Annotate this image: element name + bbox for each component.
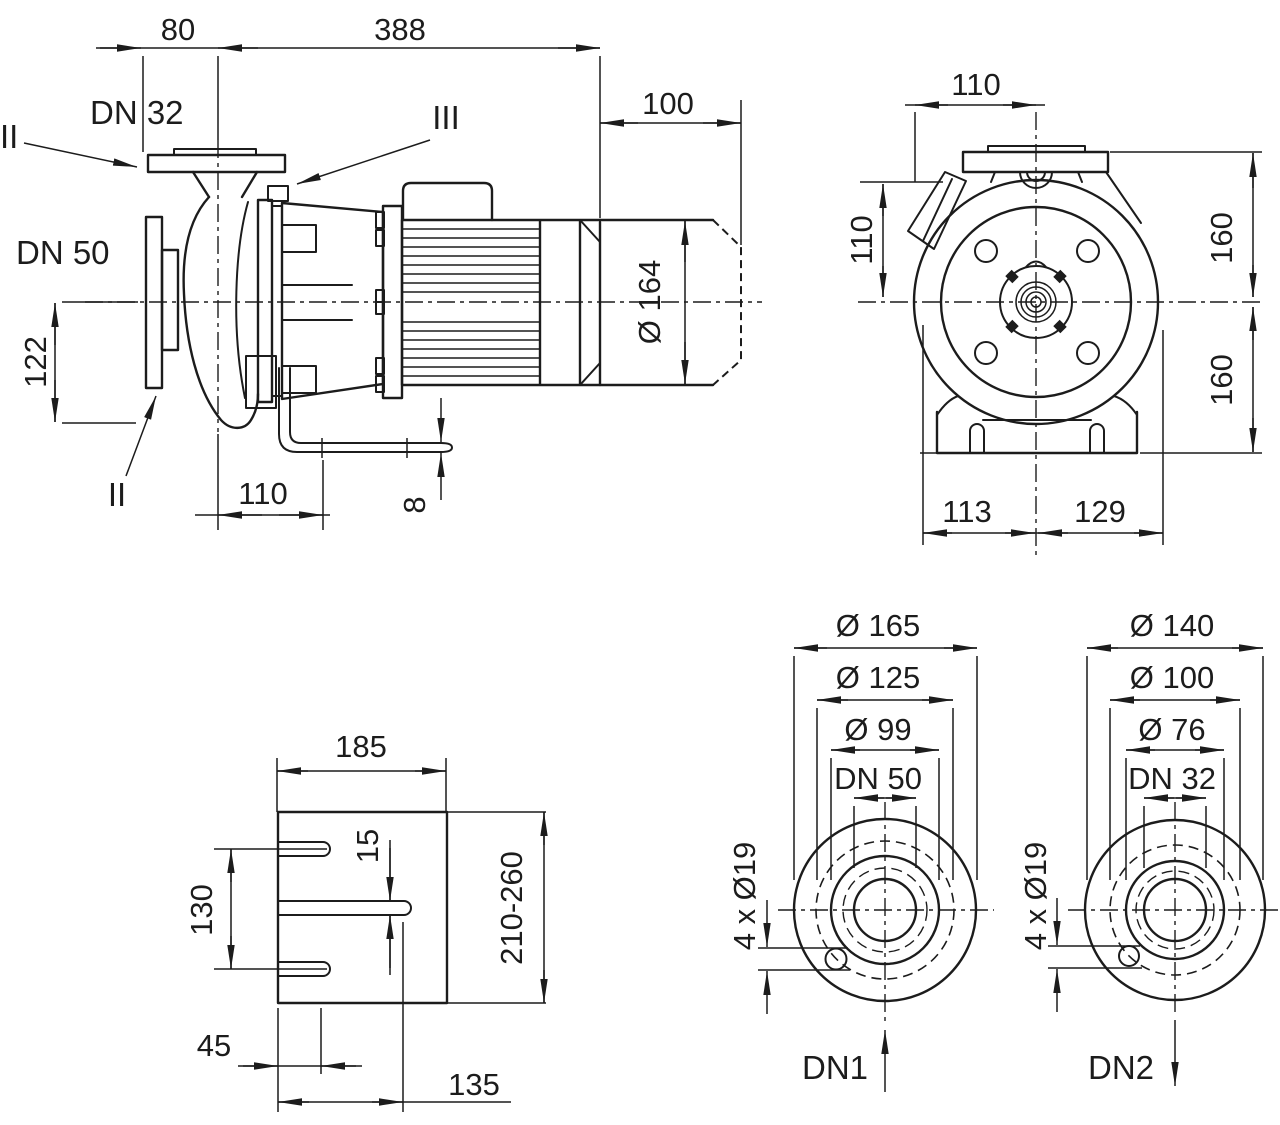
lantern-housing [282, 203, 383, 399]
flange-dn32-view: Ø 140 Ø 100 Ø 76 DN 32 4 x Ø19 DN2 [1018, 608, 1280, 1086]
feet-fillets [937, 396, 1137, 415]
dim-8-label: 8 [397, 496, 432, 513]
dim-100-label: 100 [642, 86, 694, 121]
dim-45-label: 45 [197, 1028, 231, 1063]
dim-129-label: 129 [1074, 494, 1126, 529]
dim-dia140-label: Ø 140 [1130, 608, 1214, 643]
vent-plug [268, 186, 288, 201]
section-leader-drain [126, 396, 156, 476]
section-mark-vent: III [432, 99, 460, 136]
lantern-bolt-top [282, 225, 316, 252]
feet-outline [937, 412, 1137, 453]
terminal-box [403, 183, 492, 220]
suction-flange-neck [162, 250, 178, 350]
support-lug-left [908, 172, 966, 249]
flange1-texts: Ø 165 Ø 125 Ø 99 DN 50 4 x Ø19 DN1 [727, 608, 922, 1086]
dim-dia100-label: Ø 100 [1130, 660, 1214, 695]
label-dn32: DN 32 [90, 94, 184, 131]
dim-135-label: 135 [448, 1067, 500, 1102]
flange2-outline [1068, 802, 1280, 1014]
port-label-dn1: DN1 [802, 1049, 868, 1086]
dim-bolt-holes-label: 4 x Ø19 [1018, 842, 1053, 951]
flange-dn50-view: Ø 165 Ø 125 Ø 99 DN 50 4 x Ø19 DN1 [727, 608, 994, 1092]
section-mark-flange: II [0, 118, 18, 155]
drain-pipe-ticks [322, 438, 407, 458]
dim-113-label: 113 [942, 494, 991, 529]
front-outline [858, 112, 1262, 560]
bolt-hole [975, 240, 997, 262]
flange1-outline [778, 802, 994, 1024]
discharge-flange [148, 155, 285, 172]
dim-80-label: 80 [161, 12, 195, 47]
bolt-hole [975, 342, 997, 364]
bolt-hole [1077, 240, 1099, 262]
section-mark-drain: II [108, 476, 126, 513]
dim-160-upper-label: 160 [1204, 212, 1239, 264]
dim-130-label: 130 [184, 884, 219, 936]
dim-110-label: 110 [238, 476, 287, 511]
dim-122-label: 122 [18, 336, 53, 388]
discharge-funnel [193, 172, 257, 197]
dim-210-260-label: 210-260 [494, 851, 529, 965]
section-leader-vent [297, 140, 430, 184]
label-dn50: DN 50 [16, 234, 110, 271]
side-texts: 80 388 100 Ø 164 122 110 8 DN 32 DN 50 I… [0, 12, 694, 514]
base-plate-view: 185 15 130 210-260 45 135 [184, 729, 546, 1112]
discharge-flange-lip [174, 149, 256, 155]
dim-110-top-label: 110 [951, 67, 1000, 102]
seal-plate [258, 200, 272, 402]
port-label-dn2: DN2 [1088, 1049, 1154, 1086]
side-view: 80 388 100 Ø 164 122 110 8 DN 32 DN 50 I… [0, 12, 762, 530]
pump-dimensional-drawing: 80 388 100 Ø 164 122 110 8 DN 32 DN 50 I… [0, 0, 1280, 1125]
lantern-bolt-bottom [282, 366, 316, 393]
dim-dn50-label: DN 50 [834, 761, 922, 796]
dim-dia165-label: Ø 165 [836, 608, 920, 643]
dim-dia99-label: Ø 99 [844, 712, 911, 747]
foot-slots [970, 424, 1104, 453]
dim-dn32-label: DN 32 [1128, 761, 1216, 796]
dim-bolt-holes-label: 4 x Ø19 [727, 842, 762, 951]
dim-388-label: 388 [374, 12, 426, 47]
base-slot-middle [278, 901, 411, 915]
bolt-hole [1077, 342, 1099, 364]
flange2-texts: Ø 140 Ø 100 Ø 76 DN 32 4 x Ø19 DN2 [1018, 608, 1216, 1086]
dim-185-label: 185 [335, 729, 387, 764]
drain-pipe [279, 368, 452, 452]
dim-160-lower-label: 160 [1204, 354, 1239, 406]
front-view: 110 110 160 160 113 129 [844, 67, 1262, 560]
drawing-canvas: 80 388 100 Ø 164 122 110 8 DN 32 DN 50 I… [0, 0, 1280, 1125]
front-texts: 110 110 160 160 113 129 [844, 67, 1239, 529]
section-leader-flange [24, 143, 137, 167]
dim-110-left-label: 110 [844, 215, 879, 264]
dim-dia164-label: Ø 164 [632, 260, 667, 344]
dim-dia76-label: Ø 76 [1138, 712, 1205, 747]
dim-15-label: 15 [350, 829, 385, 863]
dim-dia125-label: Ø 125 [836, 660, 920, 695]
